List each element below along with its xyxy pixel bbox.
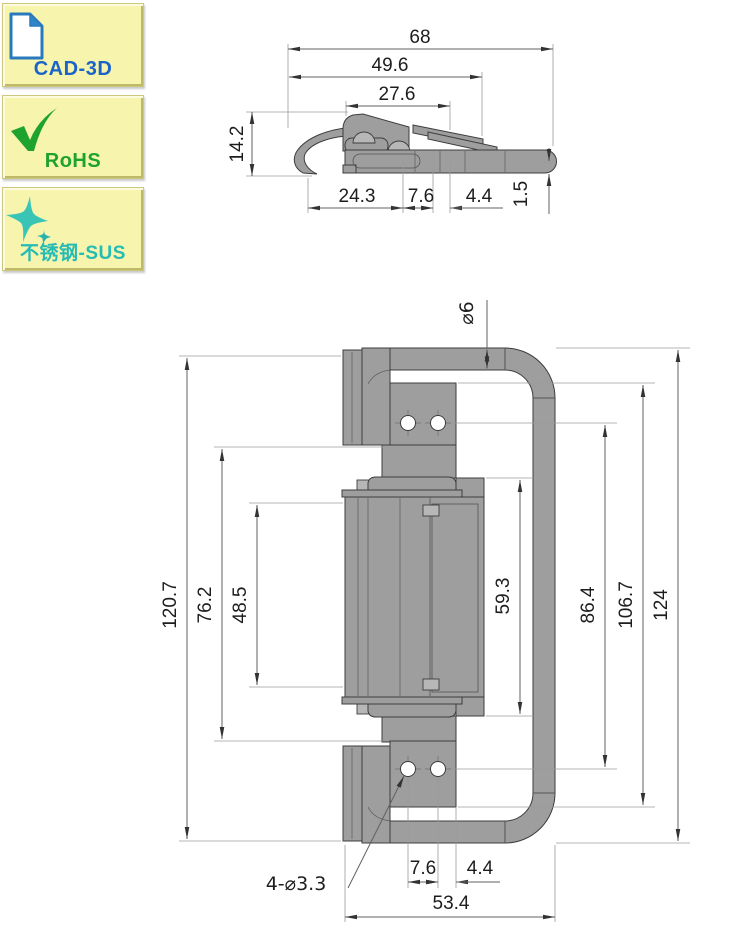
latch-base-foot xyxy=(343,165,356,173)
dim-1-5: 1.5 xyxy=(511,181,532,207)
mount-bracket-bottom xyxy=(390,741,456,807)
technical-drawing: 68 49.6 27.6 14.2 xyxy=(0,0,750,946)
hole-top-left xyxy=(401,416,416,431)
bracket-neck-bottom xyxy=(382,716,456,742)
spring-body xyxy=(345,497,484,697)
dim-27-6: 27.6 xyxy=(379,84,416,105)
hole-bottom-left xyxy=(401,762,416,777)
latch-base-bar xyxy=(345,150,557,173)
dim-59-3: 59.3 xyxy=(493,578,514,615)
tube-blend-bottom xyxy=(362,746,390,843)
handle-tube-top-bend xyxy=(505,348,555,398)
cap-flange-bar-bottom xyxy=(342,697,462,704)
handle-tube-bottom-bend xyxy=(505,793,555,843)
dim-53-4: 53.4 xyxy=(433,893,470,914)
dim-14-2: 14.2 xyxy=(227,126,248,163)
dim-49-6: 49.6 xyxy=(372,55,409,76)
handle-tube-right xyxy=(533,398,555,793)
page: CAD-3D RoHS 不锈钢-SUS xyxy=(0,0,750,946)
dim-124: 124 xyxy=(651,589,672,621)
dim-4-4-front: 4.4 xyxy=(467,858,494,879)
cap-flange-bar-top xyxy=(342,490,462,497)
hole-top-right xyxy=(431,416,446,431)
cap-plate-top xyxy=(368,477,456,490)
clip-bottom xyxy=(423,679,439,690)
left-flange-top xyxy=(343,350,362,445)
bracket-neck-top xyxy=(382,445,456,478)
dim-86-4: 86.4 xyxy=(578,586,599,623)
mount-bracket-top xyxy=(390,383,456,445)
dim-24-3: 24.3 xyxy=(339,186,376,207)
dim-120-7: 120.7 xyxy=(160,581,181,629)
dim-48-5: 48.5 xyxy=(230,587,251,624)
dim-7-6-top: 7.6 xyxy=(408,186,434,207)
dim-hole-callout: 4-⌀3.3 xyxy=(266,873,327,895)
dim-dia6: ⌀6 xyxy=(456,301,478,325)
top-view-dimensions: 68 49.6 27.6 14.2 xyxy=(227,27,553,214)
front-view-latch: ⌀6 124 106.7 86.4 59.3 xyxy=(160,300,690,922)
dim-76-2: 76.2 xyxy=(195,587,216,624)
dim-4-4-top: 4.4 xyxy=(466,186,493,207)
left-flange-bottom xyxy=(343,746,362,841)
dim-7-6-front: 7.6 xyxy=(410,858,436,879)
top-view-latch-side-profile: 68 49.6 27.6 14.2 xyxy=(227,27,557,214)
cap-plate-bottom xyxy=(368,704,456,717)
dim-68: 68 xyxy=(409,27,430,48)
dim-106-7: 106.7 xyxy=(616,581,637,629)
hole-bottom-right xyxy=(431,762,446,777)
tube-blend-top xyxy=(362,348,390,445)
clip-top xyxy=(423,505,439,516)
